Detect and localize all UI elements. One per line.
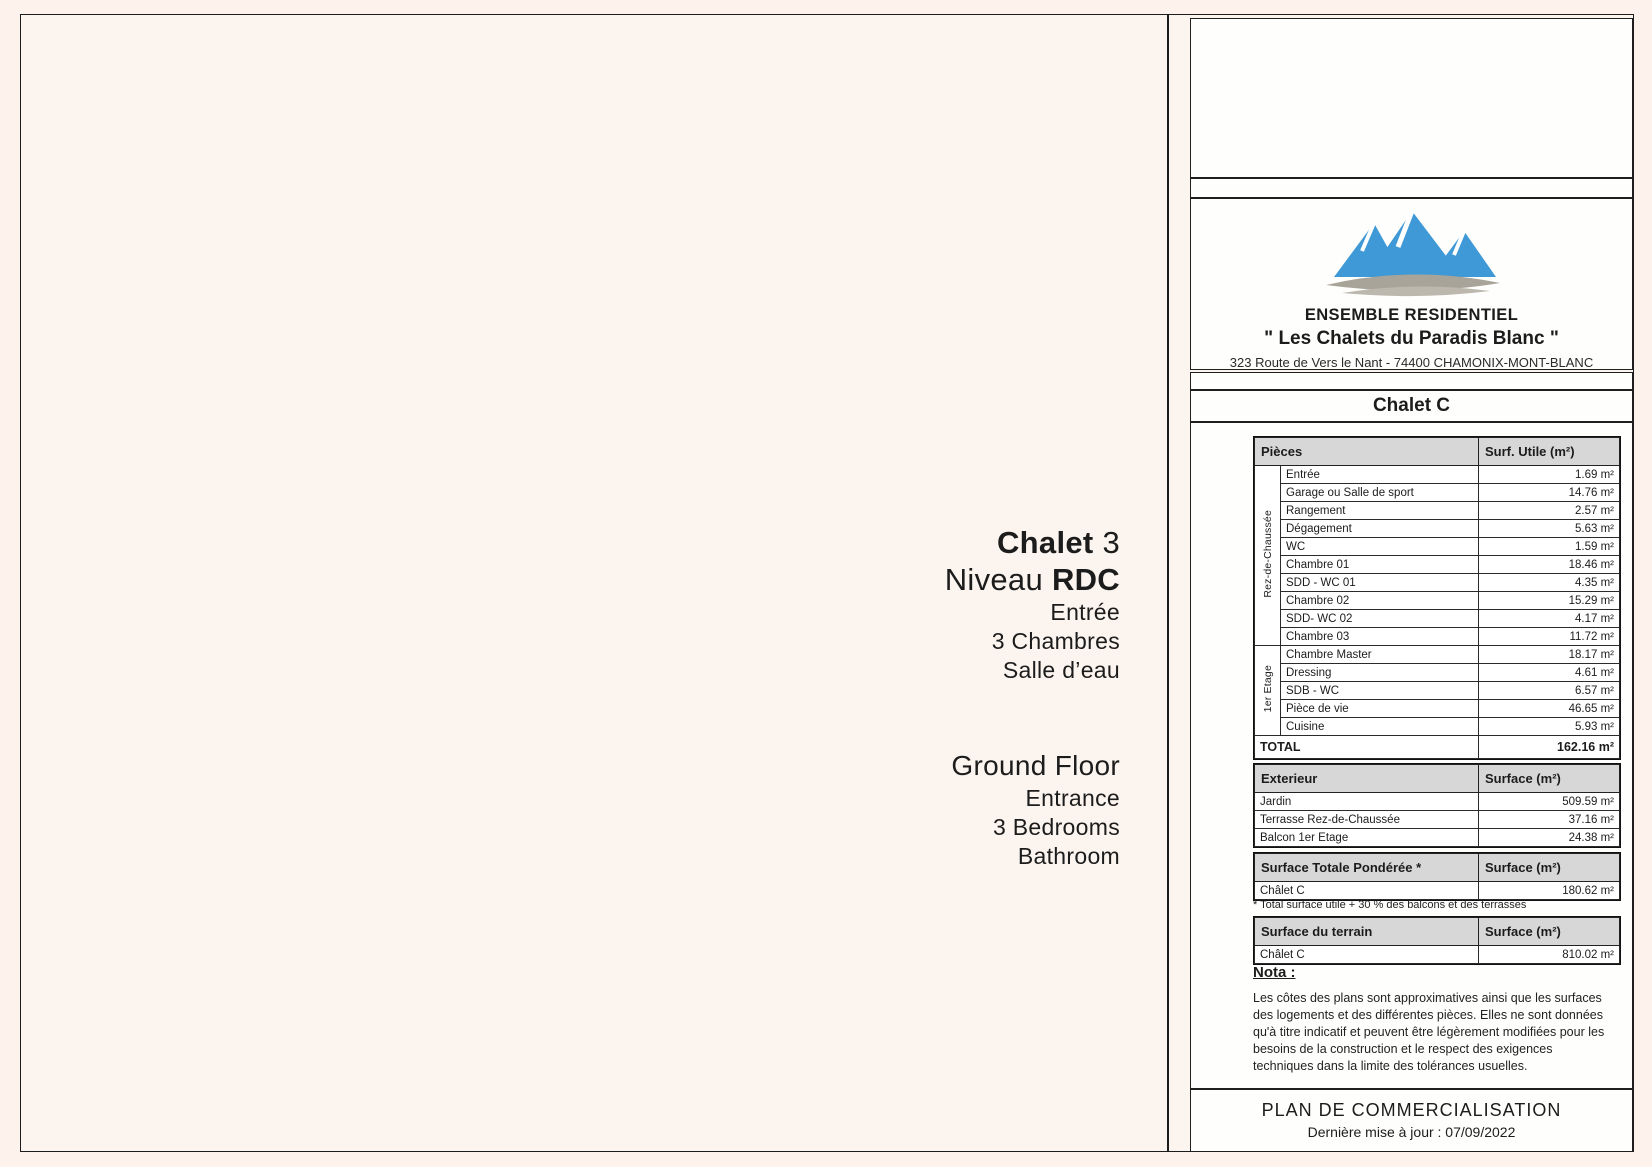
- row-label: Châlet C: [1255, 946, 1479, 964]
- row-label: Balcon 1er Etage: [1255, 829, 1479, 847]
- table-row: Chambre 02 15.29 m²: [1255, 592, 1620, 610]
- table-row: Dressing 4.61 m²: [1255, 664, 1620, 682]
- table-row: 1er EtageChambre Master 18.17 m²: [1255, 646, 1620, 664]
- weighted-footnote: * Total surface utile + 30 % des balcons…: [1253, 899, 1526, 911]
- col-header: Surface (m²): [1479, 918, 1620, 946]
- weighted-surface-table: Surface Totale Pondérée * Surface (m²)Ch…: [1253, 852, 1621, 901]
- table-row: SDD- WC 02 4.17 m²: [1255, 610, 1620, 628]
- table-row: SDB - WC 6.57 m²: [1255, 682, 1620, 700]
- plan-label-en: Ground Floor Entrance 3 Bedrooms Bathroo…: [951, 748, 1120, 871]
- level-label: Niveau RDC: [945, 561, 1120, 598]
- room-surface: 5.63 m²: [1479, 520, 1620, 538]
- table-row: Rangement 2.57 m²: [1255, 502, 1620, 520]
- total-value: 162.16 m²: [1479, 736, 1620, 759]
- room-name: SDD- WC 02: [1281, 610, 1479, 628]
- room-surface: 4.17 m²: [1479, 610, 1620, 628]
- table-row: Terrasse Rez-de-Chaussée 37.16 m²: [1255, 811, 1620, 829]
- footer-updated: Dernière mise à jour : 07/09/2022: [1190, 1124, 1633, 1140]
- room-surface: 14.76 m²: [1479, 484, 1620, 502]
- fr-line: 3 Chambres: [945, 627, 1120, 656]
- row-label: Châlet C: [1255, 882, 1479, 900]
- table-row: WC 1.59 m²: [1255, 538, 1620, 556]
- fr-line: Salle d’eau: [945, 656, 1120, 685]
- room-surface: 11.72 m²: [1479, 628, 1620, 646]
- col-header: Surface (m²): [1479, 854, 1620, 882]
- room-name: SDD - WC 01: [1281, 574, 1479, 592]
- row-value: 180.62 m²: [1479, 882, 1620, 900]
- room-name: Chambre 03: [1281, 628, 1479, 646]
- room-name: Dégagement: [1281, 520, 1479, 538]
- table-row: Dégagement 5.63 m²: [1255, 520, 1620, 538]
- floor-group-label: Rez-de-Chaussée: [1255, 466, 1281, 646]
- col-header: Pièces: [1255, 438, 1479, 466]
- room-surface: 15.29 m²: [1479, 592, 1620, 610]
- room-name: WC: [1281, 538, 1479, 556]
- plan-label-fr: Chalet 3 Niveau RDC Entrée 3 Chambres Sa…: [945, 524, 1120, 685]
- total-row: TOTAL 162.16 m²: [1255, 736, 1620, 759]
- table-row: Cuisine 5.93 m²: [1255, 718, 1620, 736]
- table-row: Châlet C 180.62 m²: [1255, 882, 1620, 900]
- footer-title: PLAN DE COMMERCIALISATION: [1190, 1100, 1633, 1121]
- nota-text: Les côtes des plans sont approximatives …: [1253, 990, 1605, 1075]
- room-surface: 2.57 m²: [1479, 502, 1620, 520]
- floor-group-label: 1er Etage: [1255, 646, 1281, 736]
- room-name: Entrée: [1281, 466, 1479, 484]
- thin-box-2: [1190, 372, 1633, 390]
- room-surface: 18.17 m²: [1479, 646, 1620, 664]
- thin-box-1: [1190, 178, 1633, 198]
- table-row: Rez-de-ChausséeEntrée 1.69 m²: [1255, 466, 1620, 484]
- terrain-table: Surface du terrain Surface (m²)Châlet C …: [1253, 916, 1621, 965]
- nota-heading: Nota :: [1253, 964, 1296, 981]
- brand-line1: ENSEMBLE RESIDENTIEL: [1191, 306, 1632, 325]
- room-name: Cuisine: [1281, 718, 1479, 736]
- surface-utile-table: Pièces Surf. Utile (m²)Rez-de-ChausséeEn…: [1253, 436, 1621, 760]
- room-surface: 46.65 m²: [1479, 700, 1620, 718]
- room-name: Chambre 02: [1281, 592, 1479, 610]
- table-row: Jardin 509.59 m²: [1255, 793, 1620, 811]
- room-name: SDB - WC: [1281, 682, 1479, 700]
- row-value: 810.02 m²: [1479, 946, 1620, 964]
- chalet-number-label: Chalet 3: [945, 524, 1120, 561]
- row-label: Jardin: [1255, 793, 1479, 811]
- room-surface: 4.35 m²: [1479, 574, 1620, 592]
- address: 323 Route de Vers le Nant - 74400 CHAMON…: [1191, 355, 1632, 370]
- table-row: Chambre 03 11.72 m²: [1255, 628, 1620, 646]
- col-header: Surf. Utile (m²): [1479, 438, 1620, 466]
- room-surface: 18.46 m²: [1479, 556, 1620, 574]
- sidebar-divider: [1167, 14, 1169, 1152]
- table-row: Balcon 1er Etage 24.38 m²: [1255, 829, 1620, 847]
- en-title: Ground Floor: [951, 748, 1120, 784]
- room-surface: 1.59 m²: [1479, 538, 1620, 556]
- brand-line2: " Les Chalets du Paradis Blanc ": [1191, 328, 1632, 350]
- room-name: Dressing: [1281, 664, 1479, 682]
- table-row: Garage ou Salle de sport 14.76 m²: [1255, 484, 1620, 502]
- en-line: Entrance: [951, 784, 1120, 813]
- col-header: Surface Totale Pondérée *: [1255, 854, 1479, 882]
- chalet-title: Chalet C: [1190, 390, 1633, 422]
- row-label: Terrasse Rez-de-Chaussée: [1255, 811, 1479, 829]
- room-surface: 1.69 m²: [1479, 466, 1620, 484]
- table-row: Pièce de vie 46.65 m²: [1255, 700, 1620, 718]
- col-header: Surface (m²): [1479, 765, 1620, 793]
- room-name: Rangement: [1281, 502, 1479, 520]
- room-name: Pièce de vie: [1281, 700, 1479, 718]
- company-header: ENSEMBLE RESIDENTIEL " Les Chalets du Pa…: [1190, 198, 1633, 370]
- table-row: SDD - WC 01 4.35 m²: [1255, 574, 1620, 592]
- room-surface: 6.57 m²: [1479, 682, 1620, 700]
- row-value: 24.38 m²: [1479, 829, 1620, 847]
- table-row: Châlet C 810.02 m²: [1255, 946, 1620, 964]
- title-block-empty-box: [1190, 18, 1633, 178]
- row-value: 37.16 m²: [1479, 811, 1620, 829]
- room-surface: 5.93 m²: [1479, 718, 1620, 736]
- total-label: TOTAL: [1255, 736, 1479, 759]
- en-line: 3 Bedrooms: [951, 813, 1120, 842]
- room-surface: 4.61 m²: [1479, 664, 1620, 682]
- table-row: Chambre 01 18.46 m²: [1255, 556, 1620, 574]
- row-value: 509.59 m²: [1479, 793, 1620, 811]
- col-header: Surface du terrain: [1255, 918, 1479, 946]
- col-header: Exterieur: [1255, 765, 1479, 793]
- room-name: Chambre 01: [1281, 556, 1479, 574]
- en-line: Bathroom: [951, 842, 1120, 871]
- fr-line: Entrée: [945, 598, 1120, 627]
- room-name: Garage ou Salle de sport: [1281, 484, 1479, 502]
- room-name: Chambre Master: [1281, 646, 1479, 664]
- mountain-logo: [1312, 203, 1512, 299]
- exterior-table: Exterieur Surface (m²)Jardin 509.59 m²Te…: [1253, 763, 1621, 848]
